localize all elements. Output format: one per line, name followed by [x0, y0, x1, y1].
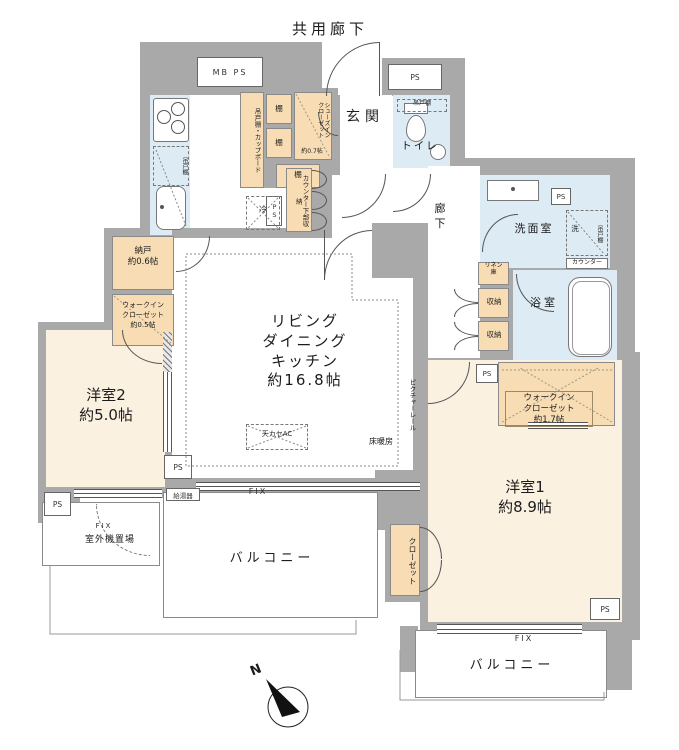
toilet-label: トイレ: [394, 140, 446, 154]
ps-box-top-right: PS: [388, 64, 442, 90]
fix-label-ldk: FIX: [240, 487, 276, 496]
room1-south-window: [437, 624, 582, 634]
ps-label: PS: [53, 500, 62, 509]
room2-fix-window: [74, 489, 162, 498]
hall-door-arc: [342, 174, 386, 218]
mb-ps-label: MB PS: [213, 68, 248, 77]
sliding-door-track: [163, 332, 172, 372]
washer-label: 洗: [568, 224, 582, 234]
burner-icon: [171, 120, 185, 134]
wic05-label: ウォークイン クローゼット 約0.5帖: [110, 300, 176, 330]
washer-cupboard-label: 吊戸棚: [590, 214, 602, 254]
entrance-hall-floor: [340, 95, 392, 175]
wic17-label: ウォークイン クローゼット 約1.7帖: [504, 393, 594, 426]
nando-label: 納戸 約0.6帖: [112, 246, 174, 268]
ps-label: PS: [600, 605, 609, 614]
fix-label-room1: FIX: [506, 634, 542, 643]
bathtub-inner: [572, 281, 610, 355]
wall-hall-corridor: [372, 223, 428, 278]
ldk-door-leaf: [324, 230, 325, 280]
fix-label-room2: FIX: [88, 522, 120, 530]
compass-needle-icon: [266, 679, 300, 717]
burner-icon: [157, 110, 171, 124]
common-corridor-label: 共用廊下: [268, 20, 392, 40]
ldk-label: リビング ダイニング キッチン 約16.8帖: [225, 312, 385, 391]
compass-north-label: N: [245, 660, 266, 682]
ps-box-corridor: PS: [476, 364, 498, 383]
toilet-bowl-icon: [406, 115, 426, 142]
ps-box-room1: PS: [590, 598, 620, 620]
kitchen-cupboard-label: 吊戸棚: [155, 148, 187, 184]
floor-plan: MB PS PS PS PS PS PS PS PS 給湯器: [0, 0, 679, 750]
water-heater-label: 給湯器: [173, 490, 193, 500]
fridge-label: 冷: [252, 205, 274, 216]
storage-label: 収納: [480, 330, 508, 340]
room1-label: 洋室1 約8.9帖: [445, 478, 605, 518]
wall-balcony2-right: [606, 626, 632, 690]
compass-circle: [268, 687, 308, 727]
washroom-label: 洗面室: [502, 222, 566, 237]
ps-label: PS: [410, 73, 419, 82]
water-heater-box: 給湯器: [166, 488, 200, 501]
closet-label: クローゼット: [394, 528, 416, 594]
storage-label: 収納: [480, 297, 508, 307]
faucet-icon: [160, 205, 164, 209]
balcony2-label: バルコニー: [462, 657, 562, 674]
counter-label: カウンター: [567, 259, 607, 267]
counter-under-label: カウンター下部収納: [290, 172, 308, 230]
entrance-door-leaf: [379, 42, 380, 96]
picture-rail-label: ピクチャーレール: [402, 335, 415, 475]
shelf-label: 棚: [266, 104, 292, 114]
linen-label: リネン 庫: [479, 263, 508, 277]
floor-heating-label: 床暖房: [360, 437, 402, 448]
room2-label: 洋室2 約5.0帖: [52, 386, 160, 426]
shoes-closet-size-label: 約0.7帖: [292, 148, 332, 156]
cupboard-strip-label: 吊戸棚・カップボード: [244, 95, 260, 185]
ps-label: PS: [483, 370, 492, 378]
entrance-label: 玄関: [336, 108, 394, 126]
corridor-label: 廊 下: [429, 202, 451, 231]
entrance-door-arc: [326, 42, 380, 96]
ps-box-washroom: PS: [551, 188, 571, 205]
toilet-cupboard-label: 吊戸棚: [397, 100, 447, 108]
washbasin-faucet-icon: [511, 187, 515, 191]
ceiling-ac-label: 天カセAC: [250, 430, 304, 439]
shelf-label: 棚: [266, 138, 292, 148]
ps-box-room2: PS: [44, 492, 71, 516]
wall-ldk-right: [413, 275, 428, 480]
ps-box-mid-left: PS: [164, 455, 192, 479]
ps-label: PS: [173, 463, 182, 472]
ldk-south-window: [196, 482, 420, 491]
wall-below-ldk-right: [375, 470, 428, 530]
toilet-door-arc: [393, 174, 431, 212]
balcony1-label: バルコニー: [222, 550, 322, 567]
mb-ps-box: MB PS: [197, 57, 263, 87]
outdoor-unit-label: 室外機置場: [64, 535, 156, 547]
ps-label: PS: [557, 193, 566, 201]
bath-label: 浴室: [516, 296, 572, 311]
shoes-closet-label: シューズイン クローゼット: [297, 94, 329, 146]
burner-icon: [171, 102, 185, 116]
